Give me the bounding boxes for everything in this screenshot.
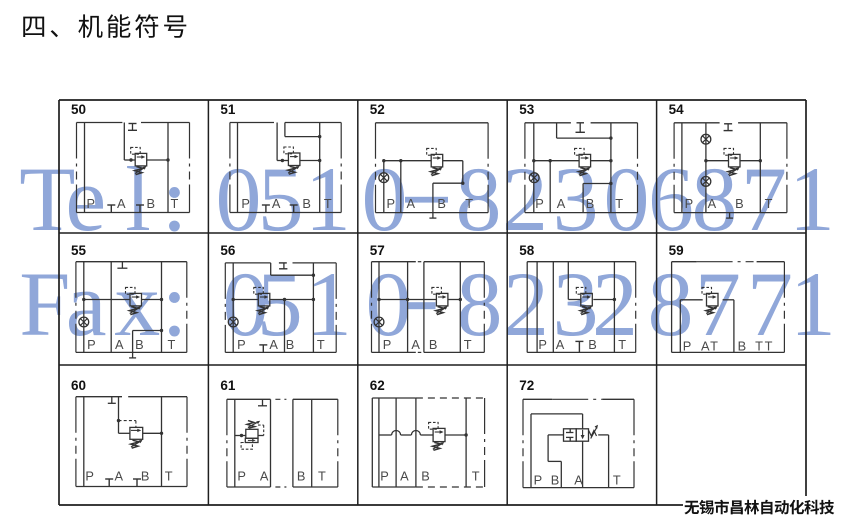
svg-text:B: B — [738, 339, 747, 354]
svg-text:B: B — [147, 196, 156, 211]
svg-text:P: P — [387, 196, 396, 211]
svg-text:T: T — [324, 196, 332, 211]
svg-text:72: 72 — [519, 378, 534, 393]
svg-text:A: A — [708, 196, 717, 211]
svg-text:P: P — [237, 469, 246, 484]
svg-text:T: T — [472, 469, 480, 484]
svg-text:55: 55 — [71, 243, 87, 258]
svg-text:B: B — [437, 196, 446, 211]
svg-text:B: B — [588, 337, 597, 352]
svg-text:B: B — [429, 337, 438, 352]
svg-text:P: P — [534, 473, 543, 488]
svg-text:T: T — [171, 196, 179, 211]
svg-text:A: A — [117, 196, 126, 211]
svg-text:P: P — [241, 196, 250, 211]
svg-text:53: 53 — [519, 102, 535, 117]
svg-text:P: P — [535, 196, 544, 211]
svg-text:B: B — [735, 196, 744, 211]
svg-text:T: T — [464, 337, 472, 352]
svg-text:56: 56 — [220, 243, 236, 258]
svg-text:P: P — [237, 337, 246, 352]
svg-text:B: B — [302, 196, 311, 211]
svg-text:A: A — [557, 196, 566, 211]
svg-text:57: 57 — [370, 243, 385, 258]
svg-text:T: T — [318, 469, 326, 484]
svg-text:A: A — [556, 337, 565, 352]
svg-text:T: T — [618, 337, 626, 352]
svg-text:T: T — [165, 469, 173, 484]
svg-text:T: T — [710, 339, 718, 354]
svg-text:T: T — [615, 196, 623, 211]
svg-text:T: T — [765, 196, 773, 211]
svg-text:B: B — [586, 196, 595, 211]
svg-text:54: 54 — [669, 102, 685, 117]
svg-text:A: A — [272, 196, 281, 211]
svg-text:61: 61 — [220, 378, 236, 393]
svg-text:B: B — [297, 469, 306, 484]
svg-text:A: A — [115, 337, 124, 352]
svg-text:T: T — [613, 473, 621, 488]
svg-text:P: P — [85, 469, 94, 484]
svg-text:50: 50 — [71, 102, 86, 117]
svg-text:T: T — [465, 196, 473, 211]
svg-text:A: A — [269, 337, 278, 352]
svg-text:B: B — [421, 469, 430, 484]
svg-text:A: A — [407, 196, 416, 211]
svg-text:A: A — [411, 337, 420, 352]
svg-text:B: B — [135, 337, 144, 352]
svg-text:51: 51 — [220, 102, 236, 117]
svg-text:60: 60 — [71, 378, 86, 393]
svg-text:A: A — [260, 469, 269, 484]
svg-text:A: A — [115, 469, 124, 484]
svg-text:P: P — [685, 196, 694, 211]
svg-text:52: 52 — [370, 102, 385, 117]
svg-text:B: B — [551, 473, 560, 488]
svg-text:T: T — [755, 339, 763, 354]
svg-text:P: P — [538, 337, 547, 352]
svg-text:58: 58 — [519, 243, 535, 258]
svg-text:T: T — [765, 339, 773, 354]
svg-text:A: A — [400, 469, 409, 484]
svg-text:P: P — [683, 339, 692, 354]
svg-text:P: P — [383, 337, 392, 352]
svg-text:59: 59 — [669, 243, 684, 258]
svg-text:B: B — [141, 469, 150, 484]
svg-text:P: P — [87, 196, 96, 211]
svg-text:A: A — [574, 473, 583, 488]
svg-text:T: T — [317, 337, 325, 352]
svg-text:P: P — [380, 469, 389, 484]
svg-text:B: B — [286, 337, 295, 352]
svg-text:T: T — [168, 337, 176, 352]
svg-text:62: 62 — [370, 378, 385, 393]
svg-text:A: A — [701, 339, 710, 354]
svg-text:P: P — [87, 337, 96, 352]
